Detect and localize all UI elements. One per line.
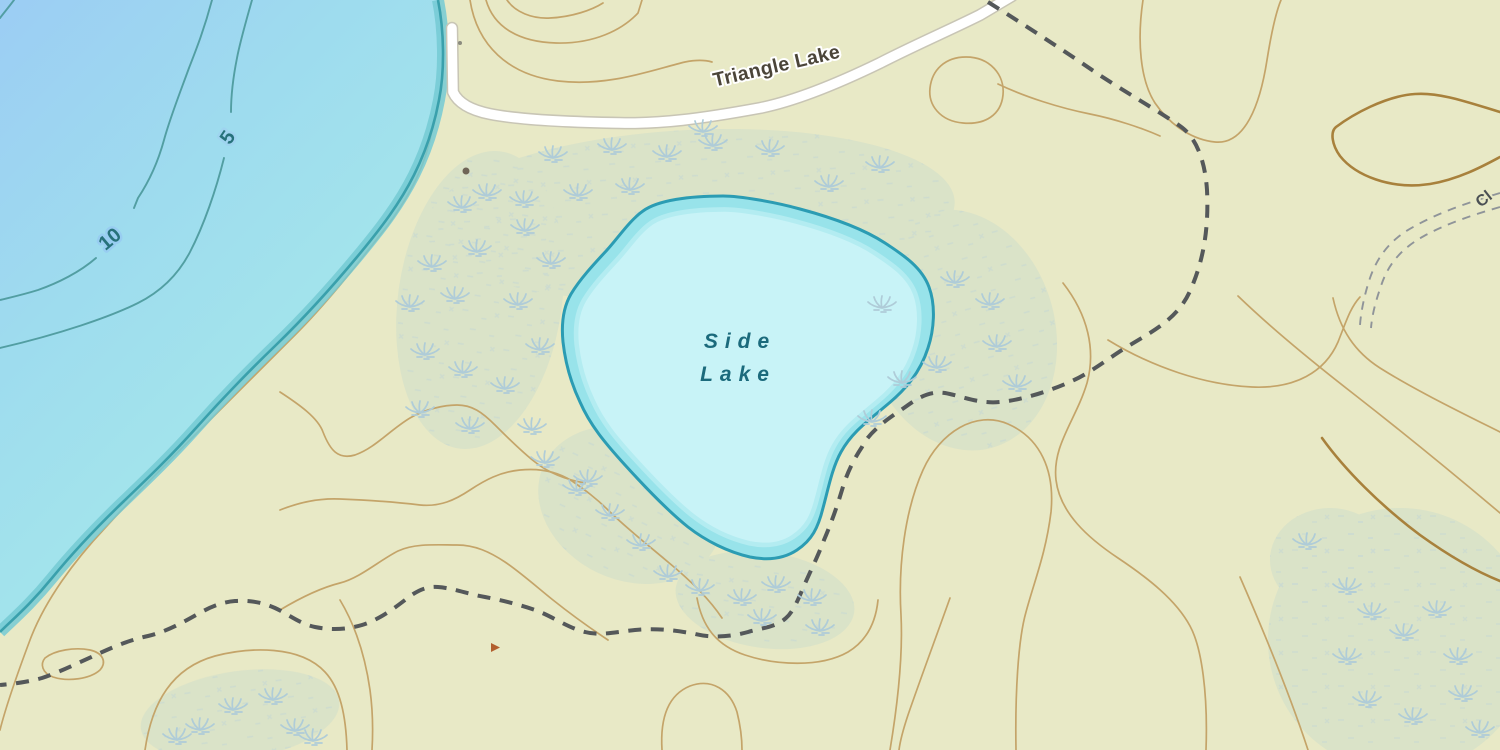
point-marker-dot (463, 168, 470, 175)
road-end-dot (458, 41, 462, 45)
map-svg: 5 10 Side Lake (0, 0, 1500, 750)
map-canvas[interactable]: 5 10 Side Lake (0, 0, 1500, 750)
side-lake-label-line2: Lake (700, 363, 776, 386)
side-lake-label-line1: Side (704, 330, 776, 353)
